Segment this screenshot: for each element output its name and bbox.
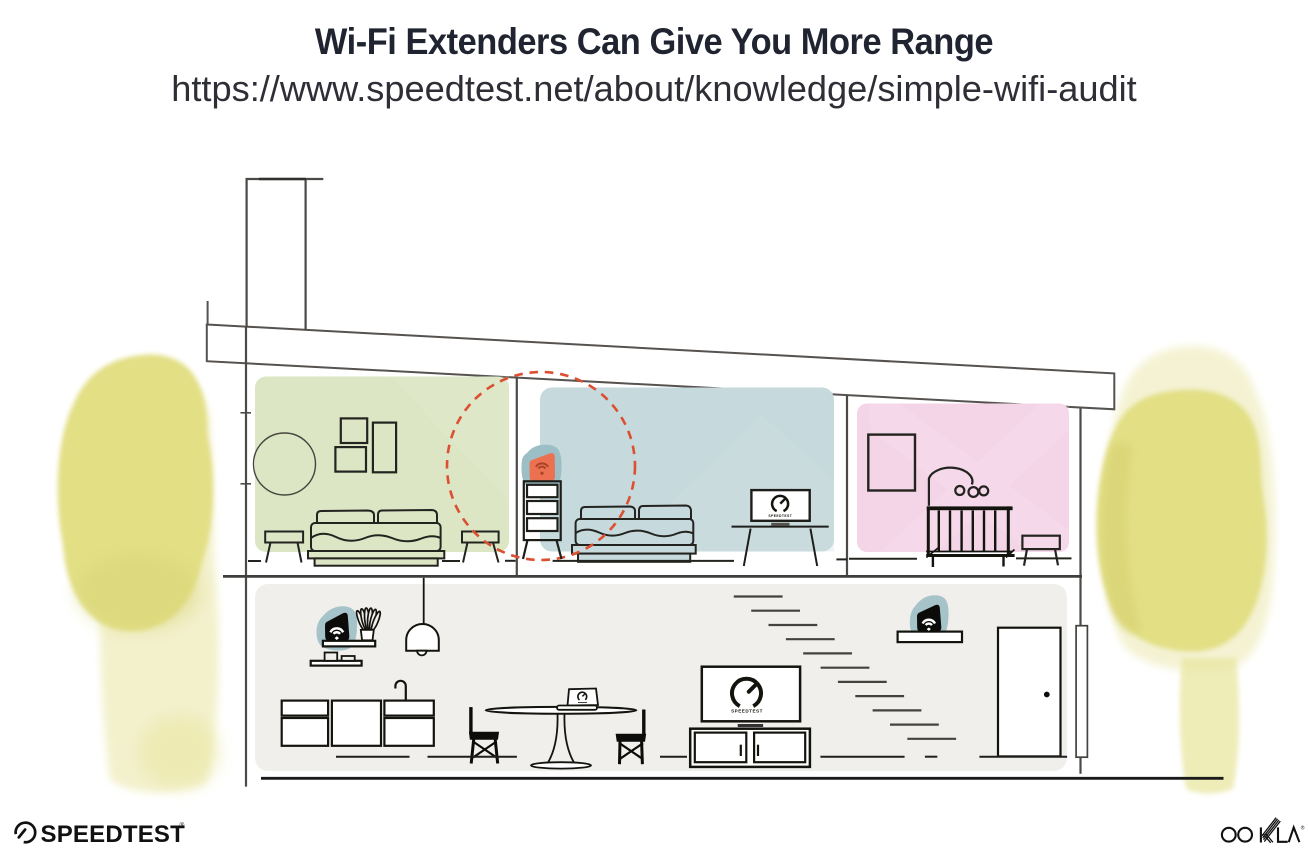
svg-text:SPEEDTEST: SPEEDTEST (41, 821, 186, 848)
svg-text:®: ® (1301, 825, 1305, 832)
svg-text:®: ® (180, 821, 185, 829)
svg-text:SPEEDTEST: SPEEDTEST (768, 514, 792, 518)
svg-text:SPEEDTEST: SPEEDTEST (731, 709, 763, 714)
